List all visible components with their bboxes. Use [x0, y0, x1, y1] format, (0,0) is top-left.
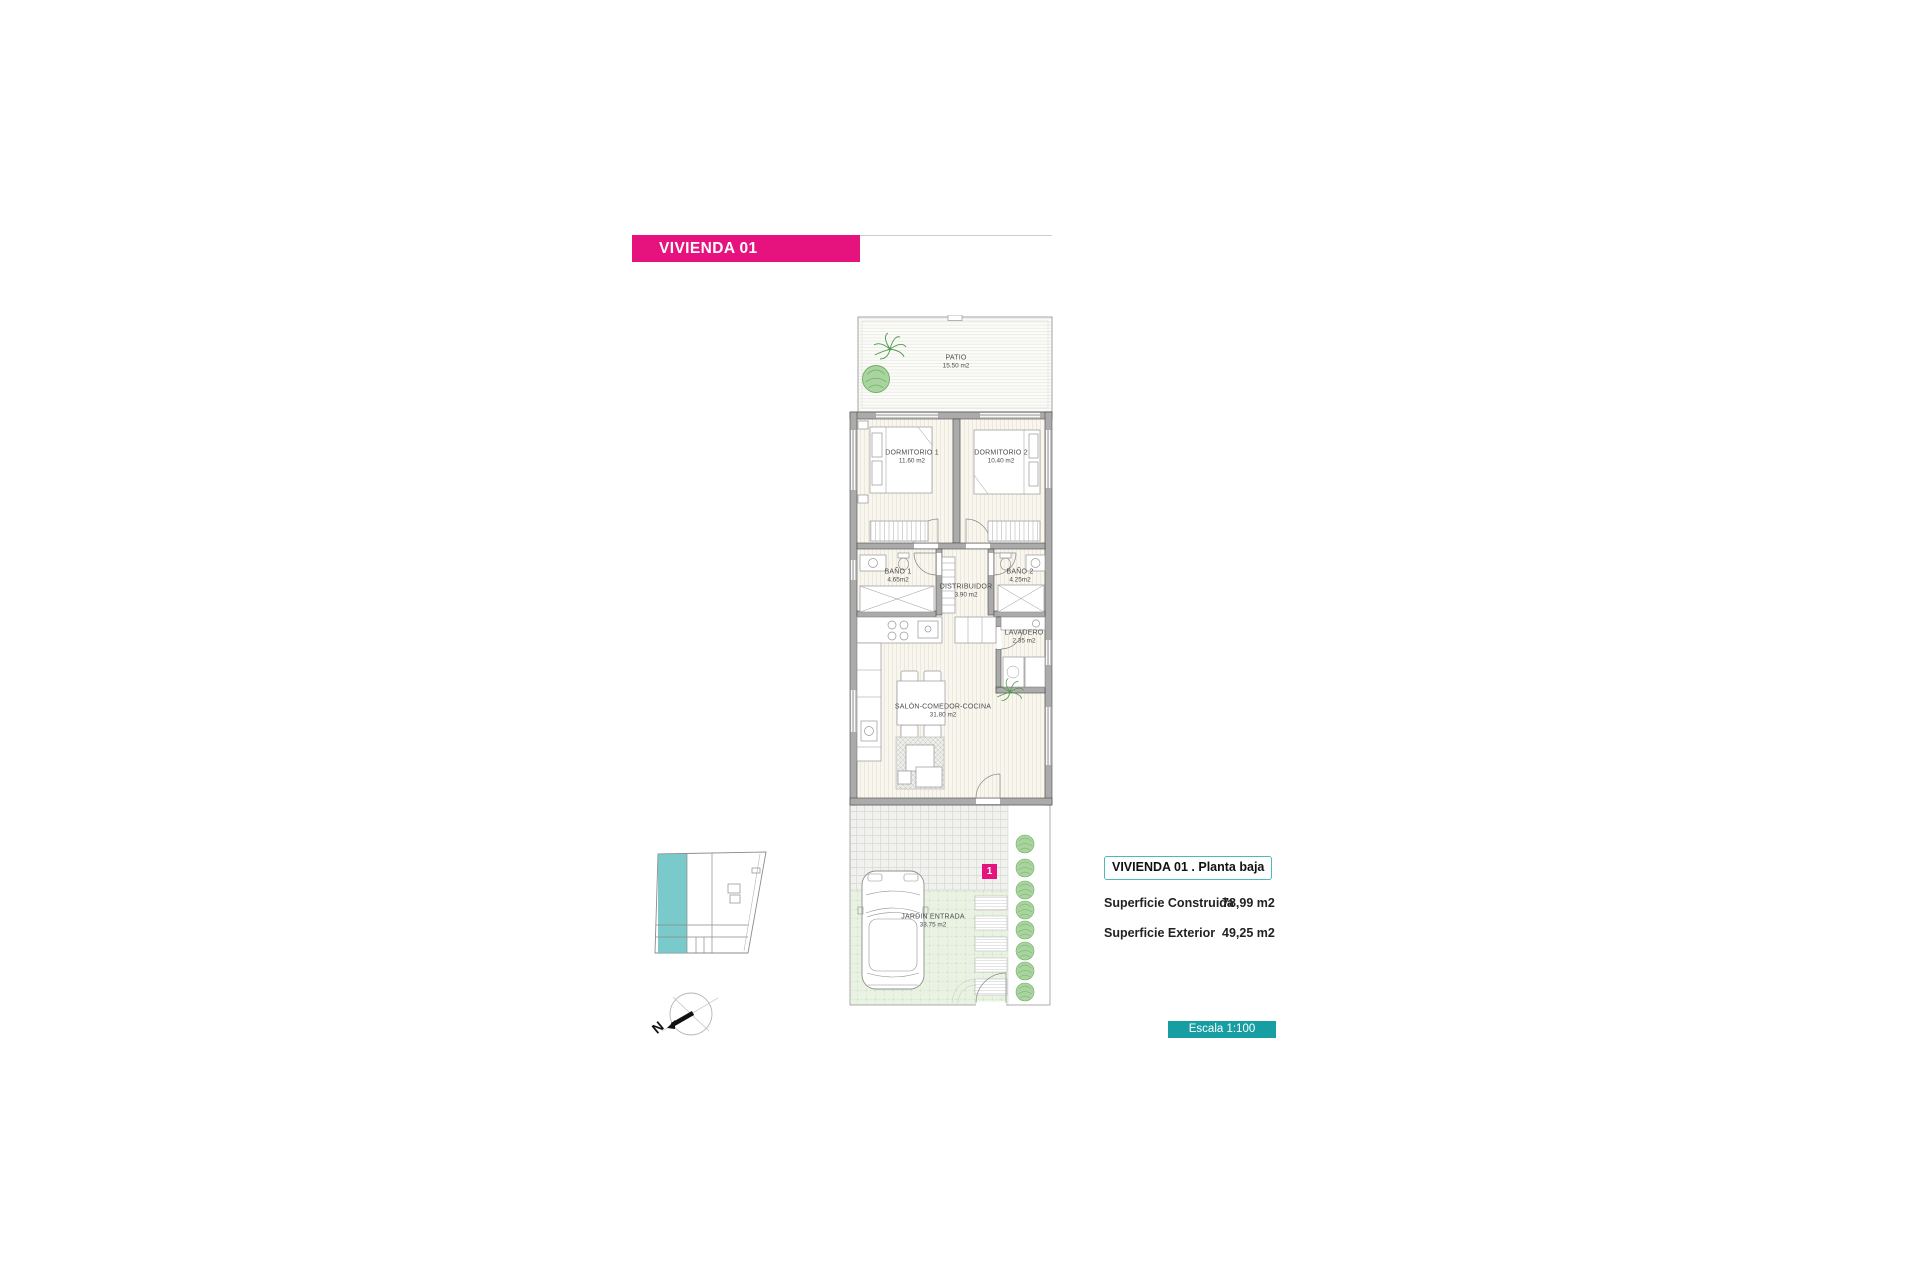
scale-indicator: Escala 1:100 [1168, 1021, 1276, 1038]
exterior-area-label: Superficie Exterior [1104, 926, 1215, 940]
room-label-bano-1: BAÑO 14.65m2 [885, 567, 912, 584]
sheet-title-bar: VIVIENDA 01 [632, 235, 860, 262]
room-label-patio: PATIO15.50 m2 [943, 353, 970, 370]
floor-plan: PATIO15.50 m2 DORMITORIO 111.60 m2 DORMI… [848, 315, 1088, 1010]
garden-area [850, 805, 1050, 1008]
car-icon [858, 871, 928, 989]
bush-icon [863, 366, 890, 393]
room-label-salon: SALÓN-COMEDOR-COCINA31.80 m2 [895, 702, 991, 719]
built-area-label: Superficie Construida [1104, 896, 1234, 910]
wardrobe-1 [870, 521, 928, 541]
location-key-plan [648, 848, 778, 963]
room-label-lavadero: LAVADERO2.35 m2 [1005, 628, 1044, 645]
sofa-rug [896, 737, 944, 789]
room-label-bano-2: BAÑO 24.25m2 [1007, 567, 1034, 584]
room-label-dormitorio-1: DORMITORIO 111.60 m2 [885, 448, 939, 465]
patio-gate [948, 315, 962, 321]
room-label-jardin: JARDIN ENTRADA33.75 m2 [901, 912, 964, 929]
unit-number-badge: 1 [982, 864, 997, 879]
exterior-area-value: 49,25 m2 [1222, 926, 1275, 940]
floor-plan-drawing [848, 315, 1088, 1010]
north-compass-icon: N [640, 980, 740, 1055]
plan-sheet: VIVIENDA 01 [0, 0, 1920, 1280]
room-label-distribuidor: DISTRIBUIDOR3.90 m2 [940, 582, 993, 599]
header-rule [860, 235, 1052, 236]
info-panel-title: VIVIENDA 01 . Planta baja [1104, 856, 1272, 880]
room-label-dormitorio-2: DORMITORIO 210.40 m2 [974, 448, 1028, 465]
north-label: N [649, 1018, 667, 1037]
built-area-value: 78,99 m2 [1222, 896, 1275, 910]
highlighted-unit [658, 854, 687, 953]
sheet-title: VIVIENDA 01 [659, 240, 758, 257]
wardrobe-2 [988, 521, 1040, 541]
